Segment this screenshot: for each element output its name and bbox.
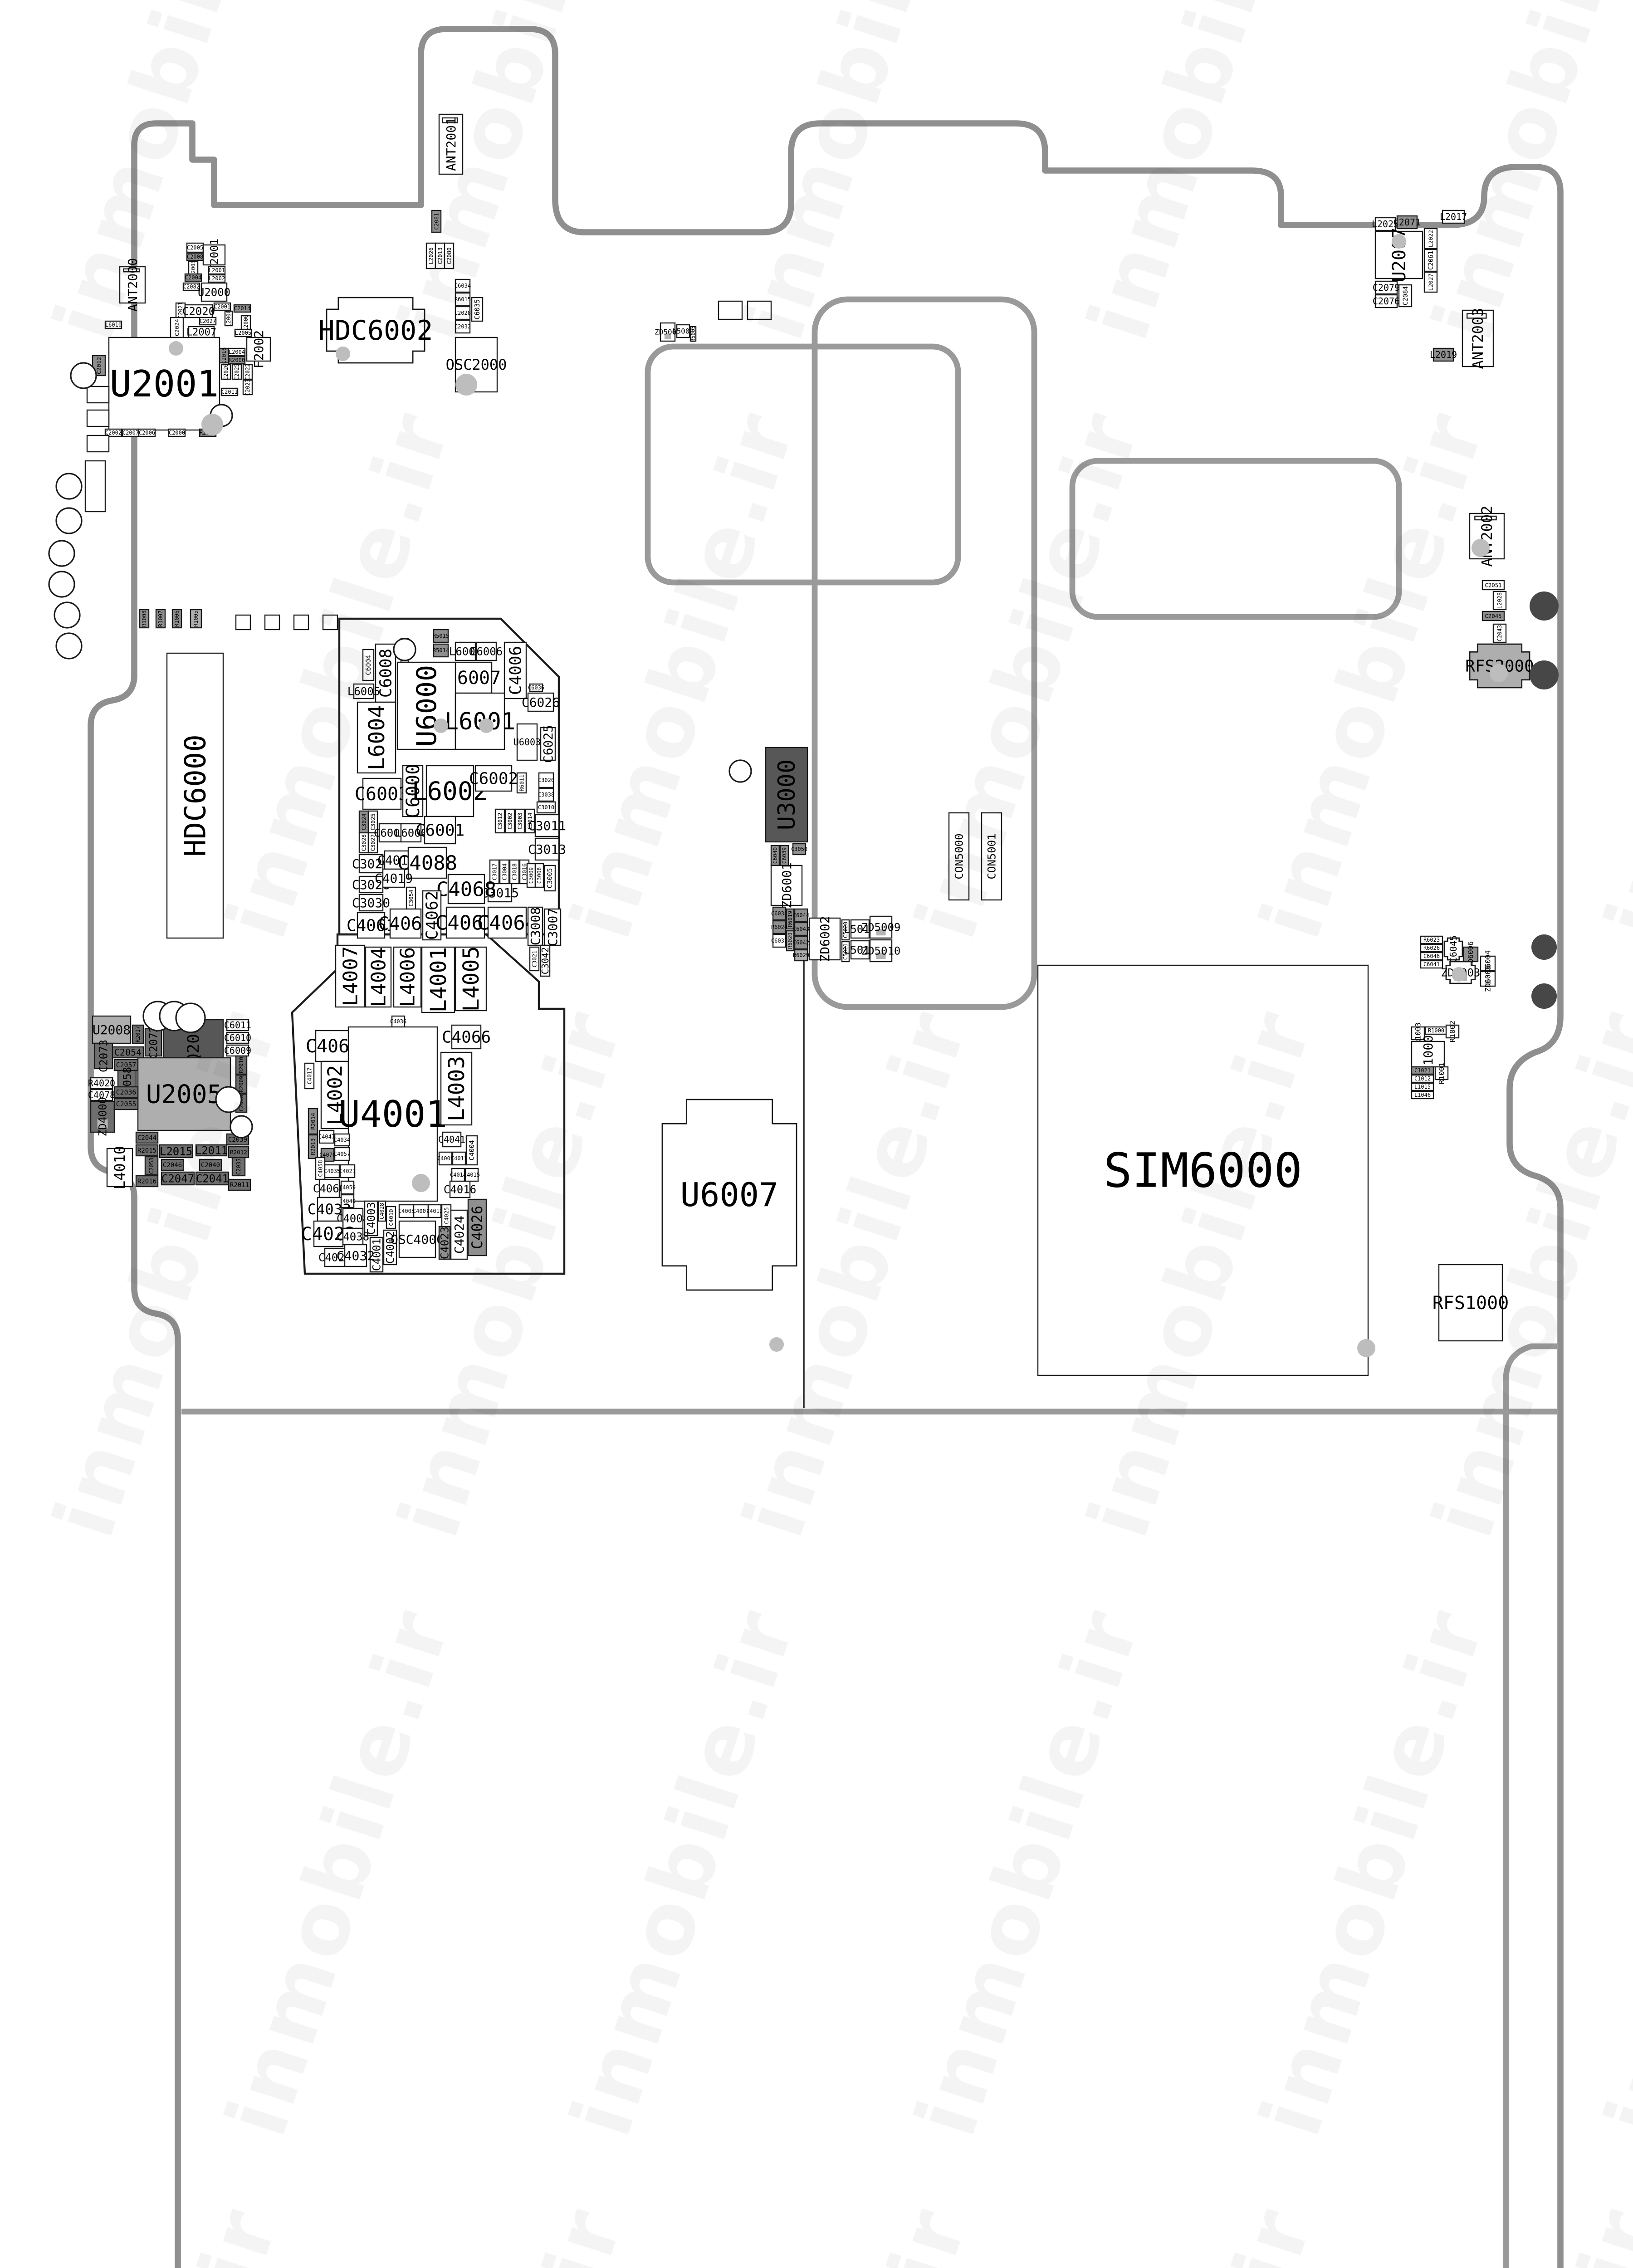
component-label: L1046 <box>1414 1092 1431 1098</box>
component-l2005: L2005 <box>235 329 251 337</box>
component-label: C4005 <box>398 1208 415 1214</box>
mounting-hole <box>1531 934 1557 960</box>
component-label: C2022 <box>244 364 251 380</box>
component-c2022: C2022 <box>243 364 252 380</box>
component-label: R1008 <box>141 611 147 627</box>
component-label: ZD6002 <box>817 916 832 962</box>
component-l4003: L4003 <box>441 1052 472 1125</box>
component-c6002: C6002 <box>469 766 518 791</box>
component-c2014: C2014 <box>234 305 250 312</box>
pin1-pad <box>412 1174 430 1192</box>
component-c6036: C6036 <box>528 684 544 691</box>
component-r2000: R2000 <box>229 357 245 364</box>
component-l1015: L1015 <box>1412 1083 1433 1090</box>
component-label: C2024 <box>173 319 180 336</box>
component-label: L1015 <box>1414 1084 1431 1090</box>
component-label: C2007 <box>122 430 139 436</box>
component-label: C2008 <box>187 254 203 260</box>
component-zd6002: ZD6002 <box>809 916 840 962</box>
component-label: C4036 <box>390 1018 406 1025</box>
component-c6046: C6046 <box>1421 953 1442 960</box>
component-label: C2000 <box>169 430 185 436</box>
component-c4010: C4010 <box>386 1207 396 1228</box>
component-label: R2000 <box>229 357 245 363</box>
pin1-pad <box>1472 539 1490 557</box>
component-label: L4001 <box>426 947 451 1013</box>
component-label: C2004 <box>185 274 201 281</box>
component-label: C3003 <box>516 812 523 829</box>
component-label: C3013 <box>528 842 566 857</box>
component-label: C1012 <box>1414 1075 1431 1082</box>
component-c4023: C4023 <box>438 1227 451 1259</box>
component-label: F2002 <box>251 330 266 368</box>
component-r1005: R1005 <box>191 610 201 628</box>
component-c2005: C2005 <box>187 243 203 252</box>
component-c3028: C3028 <box>359 833 368 853</box>
component-label: C4066 <box>442 1028 491 1047</box>
component-label: C4068 <box>436 878 496 901</box>
component-c4034: C4034 <box>334 1134 350 1146</box>
component-label: C3002 <box>506 812 513 829</box>
component-l4007: L4007 <box>336 945 365 1007</box>
component-label: C4017 <box>306 1067 313 1084</box>
component-label: C4015 <box>464 1172 480 1178</box>
component-c2024: C2024 <box>171 318 183 337</box>
component-c6003: C6003 <box>355 778 409 809</box>
component-label: C4006 <box>507 646 525 695</box>
component-label: C3009 <box>528 867 534 884</box>
component-label: C4025 <box>443 1207 450 1224</box>
component-body <box>87 410 109 426</box>
component <box>87 410 109 426</box>
component-c6042: C6042 <box>793 936 809 949</box>
component-label: C3028 <box>360 834 367 851</box>
component-label: C6045 <box>1448 935 1459 963</box>
component-r5015: R5015 <box>433 630 449 642</box>
component-label: L2007 <box>186 327 216 338</box>
component-label: C4021 <box>339 1168 356 1174</box>
component-label: C6044 <box>793 912 809 919</box>
component-c3020: C3020 <box>538 773 554 787</box>
component-label: C2016 <box>221 347 227 364</box>
component-c3008: C3008 <box>528 907 543 945</box>
component-label: L2000 <box>225 310 232 327</box>
component-label: C2014 <box>234 305 250 312</box>
component-r6023: R6023 <box>1421 936 1442 943</box>
component-c6043: C6043 <box>793 923 809 935</box>
component-c4068: C4068 <box>436 875 496 904</box>
component-hdc6000: HDC6000 <box>167 653 223 938</box>
component-c2001: C2001 <box>214 303 230 310</box>
component-label: C4011 <box>451 1155 467 1162</box>
component-c2036: C2036 <box>114 1087 138 1098</box>
pin1-pad <box>479 719 494 733</box>
component-c6040: C6040 <box>771 846 779 865</box>
component-label: C4034 <box>334 1137 350 1143</box>
component-c2025: C2025 <box>232 364 241 380</box>
component-r6011: R6011 <box>517 773 526 793</box>
component-c4025: C4025 <box>442 1205 451 1227</box>
component-l2028: L2028 <box>1493 591 1506 610</box>
component-c3009: C3009 <box>527 864 535 887</box>
component-r2017: R2017 <box>132 1025 143 1043</box>
component-label: U6007 <box>680 1176 779 1214</box>
component-label: C2027 <box>200 318 216 324</box>
component-c2054: C2054 <box>112 1047 143 1058</box>
component-label: C3008 <box>528 907 543 945</box>
test-point <box>56 508 82 533</box>
component-c2045: C2045 <box>1482 611 1504 621</box>
component-c4047: C4047 <box>318 1130 335 1143</box>
component-zd4000: ZD4000 <box>91 1097 114 1137</box>
component-l2002: L2002 <box>209 275 225 282</box>
component-c2084: C2084 <box>1399 285 1412 307</box>
component-c4011: C4011 <box>451 1152 467 1165</box>
component-c4004: C4004 <box>466 1136 477 1165</box>
component-label: C3006 <box>536 867 543 884</box>
component-c2004: C2004 <box>185 274 201 281</box>
mounting-hole <box>1531 983 1557 1009</box>
component-label: C3021 <box>531 950 538 967</box>
component-r1007: R1007 <box>156 610 165 628</box>
test-point <box>54 602 80 628</box>
component-label: L2004 <box>229 349 245 355</box>
component-label: C3010 <box>538 804 554 811</box>
component-c6025: C6025 <box>541 725 556 763</box>
component-label: ANT2002 <box>1478 506 1496 567</box>
component-zd6001: ZD6001 <box>771 862 802 908</box>
component-l4006: L4006 <box>394 947 421 1007</box>
component-c4017: C4017 <box>305 1063 314 1089</box>
component-label: C2011 <box>221 389 238 395</box>
component-label: C2084 <box>1402 286 1409 305</box>
component-label: L6001 <box>445 708 516 735</box>
component-c2026: C2026 <box>221 364 230 380</box>
component-label: C4024 <box>452 1216 467 1254</box>
component-label: C4032 <box>337 1248 375 1263</box>
component-c4024: C4024 <box>451 1210 467 1259</box>
component-c2044: C2044 <box>136 1132 158 1143</box>
component-label: C4059 <box>339 1184 356 1191</box>
component-label: C2043 <box>1496 625 1503 641</box>
component-label: L4007 <box>339 946 362 1006</box>
component-label: C3018 <box>511 863 518 880</box>
component <box>236 615 250 630</box>
component-c2000: C2000 <box>169 429 185 436</box>
component-c6044: C6044 <box>793 909 809 922</box>
component-c2076: C2076 <box>1373 295 1400 308</box>
component-label: C2054 <box>114 1047 142 1058</box>
component-c4006: C4006 <box>504 642 526 699</box>
component-c2006: C2006 <box>139 429 155 436</box>
component-label: C4058 <box>317 1160 323 1177</box>
component-c6026: C6026 <box>522 693 560 711</box>
component-c4016: C4016 <box>444 1181 476 1198</box>
component-label: C3004 <box>501 863 508 880</box>
component <box>87 386 109 403</box>
component-l1046: L1046 <box>1412 1091 1433 1099</box>
component-r5014: R5014 <box>433 644 449 657</box>
component-label: U6000 <box>411 665 443 747</box>
component-label: C3038 <box>538 792 554 798</box>
component-label: R6011 <box>518 774 525 791</box>
component-c3018: C3018 <box>510 860 519 884</box>
component-label: C2082 <box>183 283 200 290</box>
component-r4020: R4020 <box>88 1078 115 1089</box>
component-label: R5015 <box>433 633 449 639</box>
test-point <box>56 474 82 499</box>
component-label: C3054 <box>407 890 414 906</box>
component-l2004: L2004 <box>229 348 245 356</box>
component-c2043: C2043 <box>1493 624 1506 642</box>
pin1-pad <box>1357 1339 1375 1357</box>
component-c3005: C3005 <box>544 865 555 891</box>
component-label: C2006 <box>139 430 155 436</box>
component-c4005: C4005 <box>398 1205 415 1217</box>
component-c4035: C4035 <box>324 1165 340 1178</box>
component-label: L2028 <box>1496 592 1503 609</box>
component-label: C2045 <box>1485 612 1501 619</box>
component-c2071: C2071 <box>1393 216 1421 229</box>
component-label: C4047 <box>318 1134 335 1140</box>
component-c2007: C2007 <box>122 429 139 436</box>
component <box>87 435 109 452</box>
component-c3054: C3054 <box>406 887 416 909</box>
component-label: C3011 <box>528 818 566 833</box>
component-label: C3012 <box>496 812 503 829</box>
component-c1021: C1021 <box>1412 1067 1433 1074</box>
component-label: L2006 <box>243 315 249 331</box>
component-label: R6026 <box>1423 945 1440 951</box>
test-point <box>49 541 74 566</box>
component-c2008: C2008 <box>187 253 203 260</box>
component-label: C6025 <box>541 725 556 763</box>
mounting-hole <box>1530 591 1559 621</box>
component-u6003: U6003 <box>513 724 541 760</box>
component-c2055: C2055 <box>114 1099 138 1110</box>
component-c2027: C2027 <box>200 318 216 325</box>
component-label: C2055 <box>116 1100 137 1108</box>
component-label: C2023 <box>244 379 251 396</box>
pin1-pad <box>169 341 183 356</box>
component-c4021: C4021 <box>339 1165 356 1178</box>
component-label: C1021 <box>1414 1067 1431 1074</box>
component-label: C4023 <box>438 1227 451 1259</box>
pin1-pad <box>455 374 477 396</box>
component-c4038: C4038 <box>337 1228 369 1245</box>
component-label: C6003 <box>355 784 409 805</box>
pin1-pad <box>1490 664 1508 682</box>
component-c3004: C3004 <box>500 860 509 884</box>
component-l4005: L4005 <box>455 946 486 1012</box>
component-c6006: C6006 <box>470 642 503 660</box>
component-c2079: C2079 <box>1373 281 1400 294</box>
component-c3012: C3012 <box>495 809 504 833</box>
component-label: C6006 <box>470 645 503 658</box>
test-point <box>56 633 82 659</box>
component-r1000: R1000 <box>1425 1027 1447 1034</box>
component-label: C4012 <box>426 1208 443 1214</box>
component-label: C2025 <box>234 364 240 380</box>
component-label: L4006 <box>396 947 419 1007</box>
component-r2014: R2014 <box>308 1109 318 1134</box>
component-c3003: C3003 <box>515 809 524 833</box>
component-c2051: C2051 <box>1482 581 1504 590</box>
component-c4066: C4066 <box>442 1025 491 1049</box>
component-label: OSC2000 <box>446 356 507 373</box>
component-label: L2022 <box>1427 230 1434 247</box>
component-label: C3050 <box>791 846 807 852</box>
pin1-pad <box>1392 234 1406 249</box>
component-u2000: U2000 <box>198 283 230 301</box>
component-l2006: L2006 <box>241 315 250 331</box>
component-c3013: C3013 <box>528 838 566 860</box>
component-label: C2020 <box>182 305 215 318</box>
component-c4041: C4041 <box>438 1132 465 1147</box>
component-c4012: C4012 <box>426 1205 443 1217</box>
component-label: L2002 <box>209 275 225 282</box>
component-label: C6042 <box>793 939 809 946</box>
component-label: R1005 <box>193 611 199 627</box>
component-label: C6040 <box>772 847 778 864</box>
component-label: R1006 <box>174 611 180 627</box>
component-label: R2017 <box>135 1026 141 1042</box>
component-u2001: U2001 <box>109 337 220 430</box>
component-u3000: U3000 <box>766 748 807 842</box>
component-label: C3020 <box>538 777 554 783</box>
pcb-diagram: C2005C2008L2003F2001L2001L2002C2004C2082… <box>0 0 1633 2268</box>
component-label: R1001 <box>1437 1062 1446 1084</box>
component-label: C2079 <box>1373 282 1400 293</box>
component-label: C4010 <box>387 1209 394 1226</box>
component-c3024: C3024 <box>359 811 368 833</box>
component-label: C2005 <box>187 244 203 251</box>
component-c6045: C6045 <box>1444 935 1462 963</box>
component-c3011: C3011 <box>528 815 566 836</box>
component-c6037: C6037 <box>771 934 787 947</box>
component-label: C2071 <box>1393 217 1421 228</box>
component-label: C6036 <box>528 684 544 691</box>
component-label: C4016 <box>444 1183 476 1196</box>
pcb-diagram-page: C2005C2008L2003F2001L2001L2002C2004C2082… <box>0 0 1633 2268</box>
component-label: L2001 <box>209 267 225 274</box>
component-c4036: C4036 <box>390 1016 406 1027</box>
pin1-pad <box>1452 967 1466 982</box>
component-label: C6038 <box>771 910 787 917</box>
component-label: C2076 <box>1373 296 1400 307</box>
component-c3006: C3006 <box>535 864 543 887</box>
component <box>265 615 279 630</box>
pin1-pad <box>201 414 223 435</box>
component-c3042: C3042 <box>540 945 551 976</box>
component <box>85 461 105 512</box>
component-l2007: L2007 <box>186 327 216 338</box>
component-label: ZD5009 <box>861 921 901 934</box>
component-l2000: L2000 <box>225 310 232 327</box>
component-label: R1007 <box>157 611 164 627</box>
component-c4015: C4015 <box>464 1168 480 1181</box>
component-label: C2026 <box>223 364 229 380</box>
test-point <box>49 572 74 597</box>
component-c2023: C2023 <box>243 379 252 396</box>
component-u6007: U6007 <box>662 1100 797 1290</box>
component-label: L2019 <box>1430 349 1457 360</box>
component-label: C3024 <box>360 813 367 830</box>
component-label: OSC4000 <box>391 1232 444 1247</box>
component-body <box>236 615 250 630</box>
component-label: R2013 <box>309 1138 316 1155</box>
component-label: C6039 <box>781 847 787 864</box>
component-l6001: L6001 <box>445 693 516 749</box>
component-r6024: R6024 <box>771 921 787 934</box>
component-label: R5005 <box>690 326 696 342</box>
component-l4004: L4004 <box>366 947 391 1007</box>
component-c1012: C1012 <box>1412 1075 1433 1082</box>
component-l4001: L4001 <box>422 947 455 1013</box>
component-label: C4057 <box>334 1151 350 1157</box>
component-label: C2001 <box>214 303 230 310</box>
component-label: R6029 <box>793 952 809 958</box>
component-label: C6026 <box>522 695 560 710</box>
component-label: R6024 <box>771 924 787 930</box>
component-u6000: U6000 <box>397 662 455 749</box>
component-label: R1002 <box>1448 1021 1457 1042</box>
component-r2013: R2013 <box>308 1135 318 1158</box>
component-label: C4035 <box>324 1168 340 1174</box>
test-point <box>71 363 96 388</box>
component-c3030: C3030 <box>352 894 390 911</box>
component-c4032: C4032 <box>337 1245 375 1266</box>
pin1-pad <box>434 719 448 733</box>
component-label: C4041 <box>438 1134 465 1145</box>
component-label: R6023 <box>1423 937 1440 943</box>
component-label: L2005 <box>235 330 251 336</box>
mounting-hole <box>1530 660 1559 689</box>
component-label: U4001 <box>338 1093 448 1135</box>
component-label: U6003 <box>513 737 541 748</box>
component-c2011: C2011 <box>221 388 238 396</box>
component-label: C6046 <box>1423 953 1440 959</box>
component-l4010: L4010 <box>107 1146 132 1189</box>
component-c3050: C3050 <box>791 844 807 855</box>
component-r1008: R1008 <box>140 610 149 628</box>
component-c3002: C3002 <box>505 809 514 833</box>
component-label: C4038 <box>337 1230 369 1243</box>
component-label: L4003 <box>444 1056 469 1122</box>
component-label: U2008 <box>93 1022 131 1037</box>
component-c4057: C4057 <box>334 1148 350 1160</box>
component-label: R2014 <box>309 1113 316 1129</box>
component-label: C2051 <box>1485 582 1501 588</box>
component-label: C6002 <box>469 770 518 788</box>
component-l2019: L2019 <box>1430 348 1457 361</box>
component-label: C6041 <box>1423 961 1440 968</box>
component-r1006: R1006 <box>172 610 181 628</box>
component-body <box>265 615 279 630</box>
component-label: C4003 <box>365 1202 377 1235</box>
component-label: ZD6005 <box>1484 966 1492 992</box>
component-label: L4004 <box>367 947 390 1007</box>
component-label: C2044 <box>137 1134 156 1142</box>
component-l2022: L2022 <box>1424 229 1437 249</box>
component-label: ZD5010 <box>861 944 901 957</box>
component-c4028: C4028 <box>378 1201 386 1221</box>
component-c6041: C6041 <box>1421 961 1442 968</box>
component-label: R4020 <box>88 1078 115 1089</box>
component-label: U2000 <box>198 286 230 298</box>
component-label: U3000 <box>773 759 801 831</box>
pin1-pad <box>336 347 350 361</box>
